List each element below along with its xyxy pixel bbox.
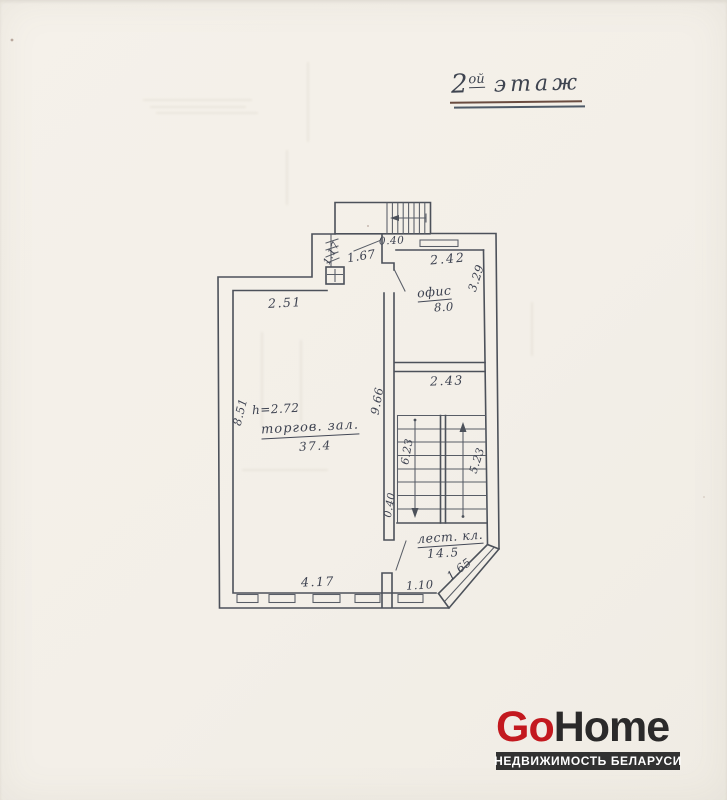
stair-direction-arrow-up <box>460 422 467 518</box>
room-label-stairwell: лест. кл. <box>417 527 484 547</box>
logo-home: Home <box>554 703 669 751</box>
logo-tagline: НЕДВИЖИМОСТЬ БЕЛАРУСИ <box>494 754 682 768</box>
dim-hall-top: 2.51 <box>268 294 303 311</box>
dim-corridor-width: 0.40 <box>379 234 405 247</box>
room-hall-height: h=2.72 <box>252 401 300 417</box>
room-office-area: 8.0 <box>434 299 455 314</box>
room-hall-area: 37.4 <box>299 438 332 454</box>
dim-bottom-left: 4.17 <box>301 573 335 589</box>
floor-plan-drawing <box>0 0 727 800</box>
logo-go: Go <box>496 703 554 751</box>
dim-office-width: 2.42 <box>429 249 466 267</box>
top-staircase-arrow <box>390 214 426 222</box>
logo-tagline-bar: НЕДВИЖИМОСТЬ БЕЛАРУСИ <box>496 752 680 770</box>
gohome-wordmark: GoHome <box>496 706 680 749</box>
dim-bottom-right: 1.10 <box>406 577 434 592</box>
room-label-office: офис <box>416 283 452 301</box>
bottom-wall-pier <box>382 573 392 607</box>
scanned-floor-plan-page: 2ойэтаж <box>0 0 727 800</box>
stair-direction-arrow-down <box>412 419 419 518</box>
room-stairwell-area: 14.5 <box>427 545 460 561</box>
dim-landing-width: 2.43 <box>430 372 464 388</box>
bottom-window-band <box>237 595 423 603</box>
vent-cross-icon <box>326 267 344 284</box>
gohome-logo: GoHome НЕДВИЖИМОСТЬ БЕЛАРУСИ <box>496 706 680 770</box>
